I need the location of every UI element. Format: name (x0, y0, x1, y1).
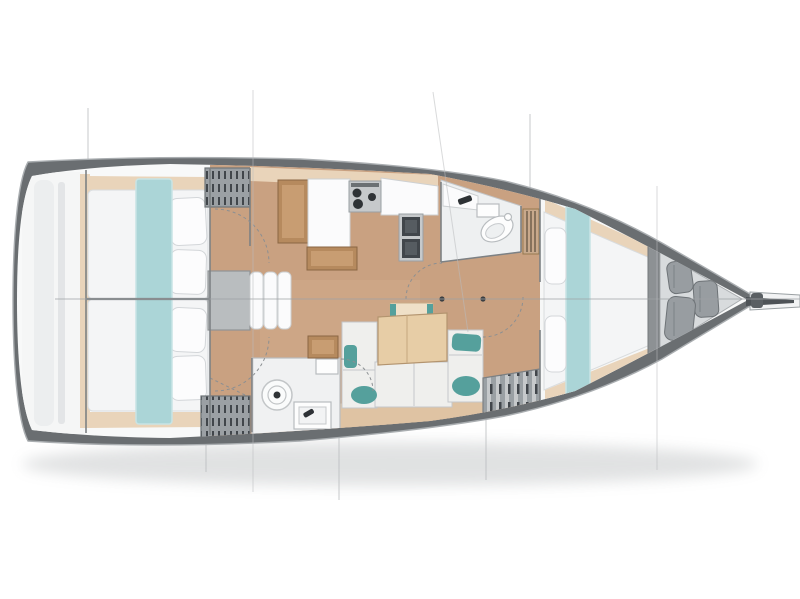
galley-cabinet (278, 180, 308, 243)
transom-garage: Transom stowage (22, 172, 84, 434)
boat-floorplan: Hull outline Transom stowage Saloon Aft … (0, 0, 800, 599)
hull-shadow (22, 442, 758, 486)
aft-berth-runner (136, 179, 172, 424)
hanging-locker (523, 209, 539, 254)
stove: Three-burner stove (349, 181, 381, 212)
companionway-steps: Companionway steps (208, 271, 291, 330)
bowsprit: Bowsprit (746, 292, 800, 310)
forward-cabin: Forward cabin V-berth (540, 150, 662, 450)
galley-lower-counter (307, 247, 357, 270)
galley-sink: Double galley sink (399, 214, 423, 261)
